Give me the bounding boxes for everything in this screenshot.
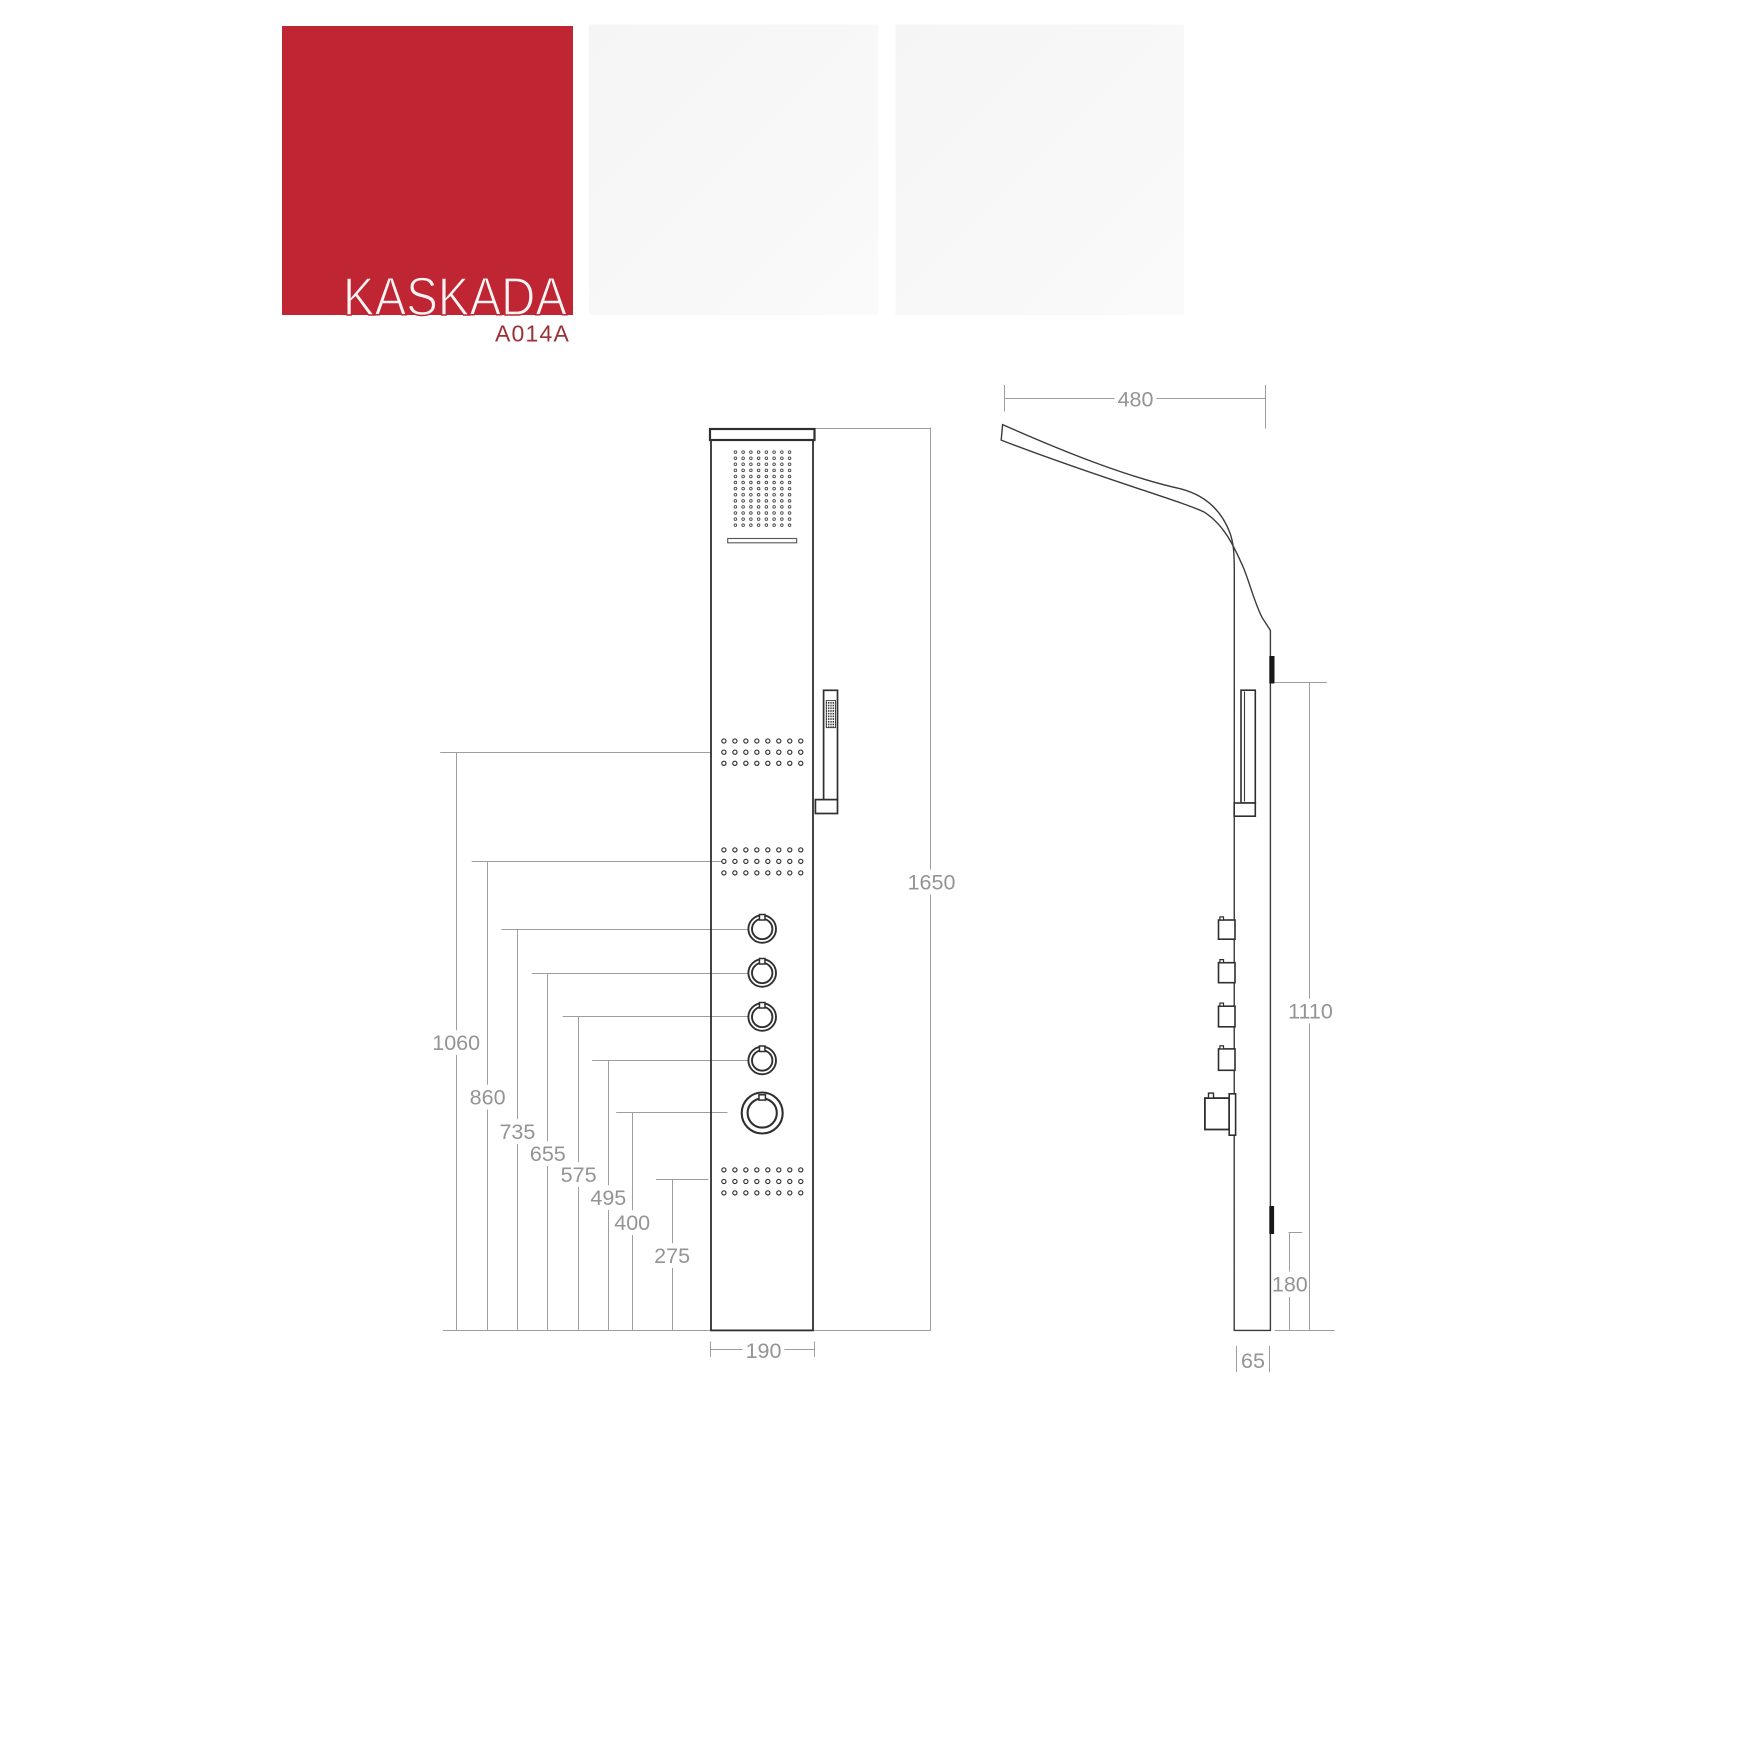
svg-text:400: 400 [614, 1211, 650, 1235]
svg-text:190: 190 [746, 1339, 782, 1363]
svg-text:65: 65 [1241, 1349, 1265, 1373]
svg-text:735: 735 [499, 1120, 535, 1144]
svg-text:860: 860 [470, 1086, 506, 1110]
svg-text:1060: 1060 [432, 1031, 480, 1055]
svg-text:KASKADA: KASKADA [343, 267, 567, 327]
svg-text:495: 495 [590, 1186, 626, 1210]
svg-text:480: 480 [1118, 388, 1154, 412]
svg-text:575: 575 [561, 1163, 597, 1187]
svg-text:A014A: A014A [495, 321, 570, 347]
svg-text:180: 180 [1272, 1272, 1308, 1296]
svg-text:275: 275 [654, 1244, 690, 1268]
svg-text:1110: 1110 [1288, 1000, 1333, 1024]
svg-text:1650: 1650 [908, 871, 956, 895]
